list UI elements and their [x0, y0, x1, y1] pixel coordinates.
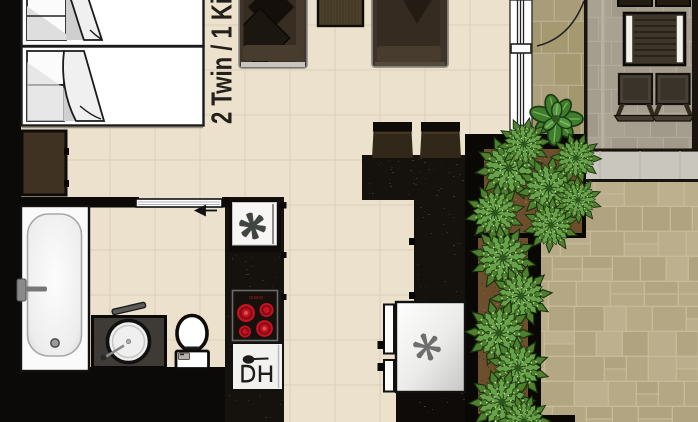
svg-text:2 Twin / 1 King: 2 Twin / 1 King [207, 0, 238, 124]
svg-text:O M·O: O M·O [249, 295, 263, 300]
